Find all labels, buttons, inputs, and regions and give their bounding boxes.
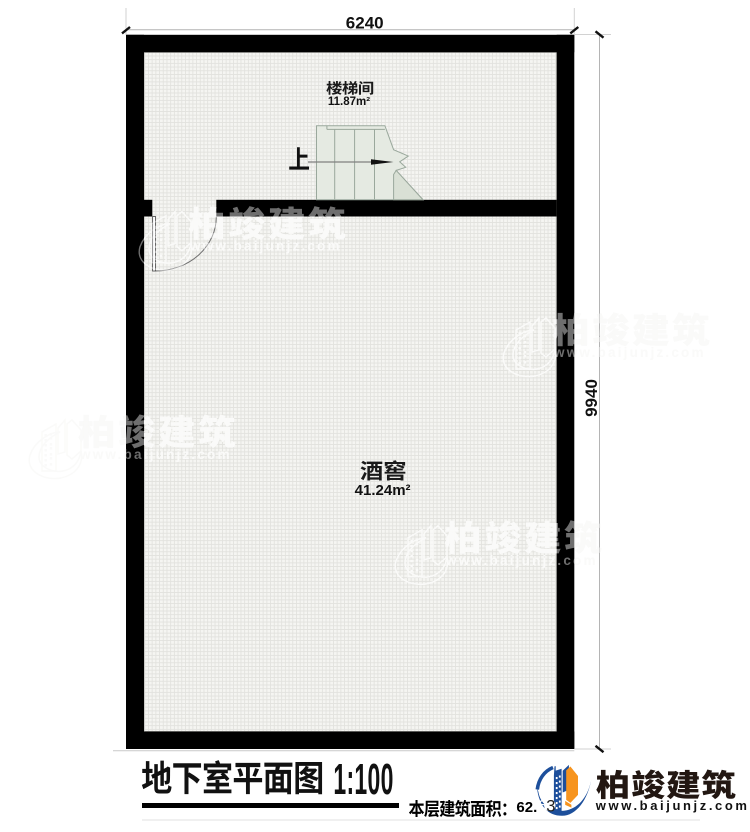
svg-text:1:100: 1:100	[333, 755, 393, 804]
svg-text:6240: 6240	[346, 14, 384, 33]
svg-text:9940: 9940	[582, 379, 601, 417]
svg-text:11.87m²: 11.87m²	[328, 96, 370, 108]
svg-text:3: 3	[546, 797, 555, 815]
svg-text:41.24m²: 41.24m²	[355, 482, 411, 499]
svg-text:62.: 62.	[516, 799, 537, 816]
svg-text:www.baijunjz.com: www.baijunjz.com	[595, 798, 750, 813]
